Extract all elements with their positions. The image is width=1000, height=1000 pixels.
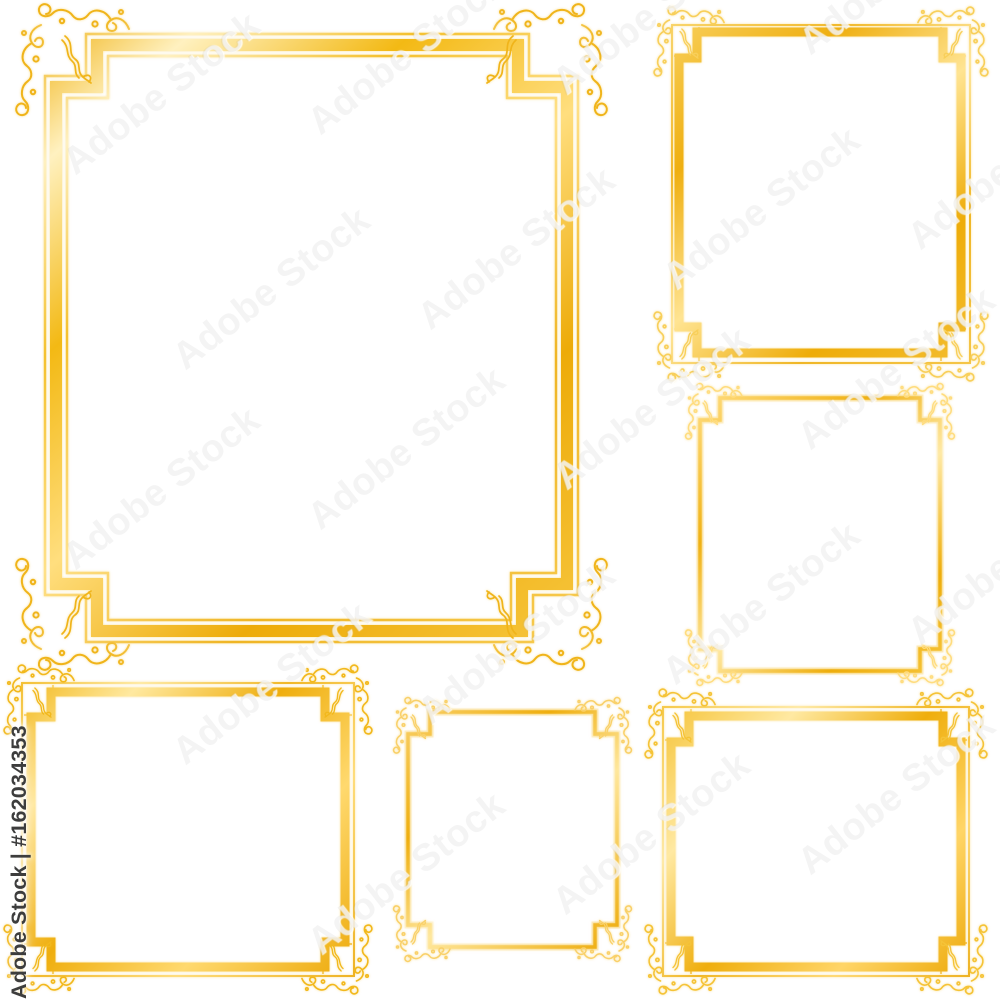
frame-band xyxy=(679,32,961,353)
corner-flourish-icon xyxy=(645,925,715,994)
corner-flourish-icon xyxy=(16,559,129,670)
corner-flourish-icon xyxy=(917,925,987,994)
stock-id-watermark: Adobe Stock | #162034353 xyxy=(7,725,32,999)
corner-flourish-icon xyxy=(918,7,988,76)
stock-image-canvas: Adobe Stock Adobe Stock Adobe Stock Adob… xyxy=(0,0,1000,1000)
frame-inner-line xyxy=(67,56,556,620)
corner-flourish-icon xyxy=(394,906,450,961)
corner-flourish-icon xyxy=(645,689,715,758)
frame-outer-line xyxy=(672,25,970,363)
corner-flourish-icon xyxy=(575,698,631,753)
corner-flourish-icon xyxy=(898,384,954,439)
